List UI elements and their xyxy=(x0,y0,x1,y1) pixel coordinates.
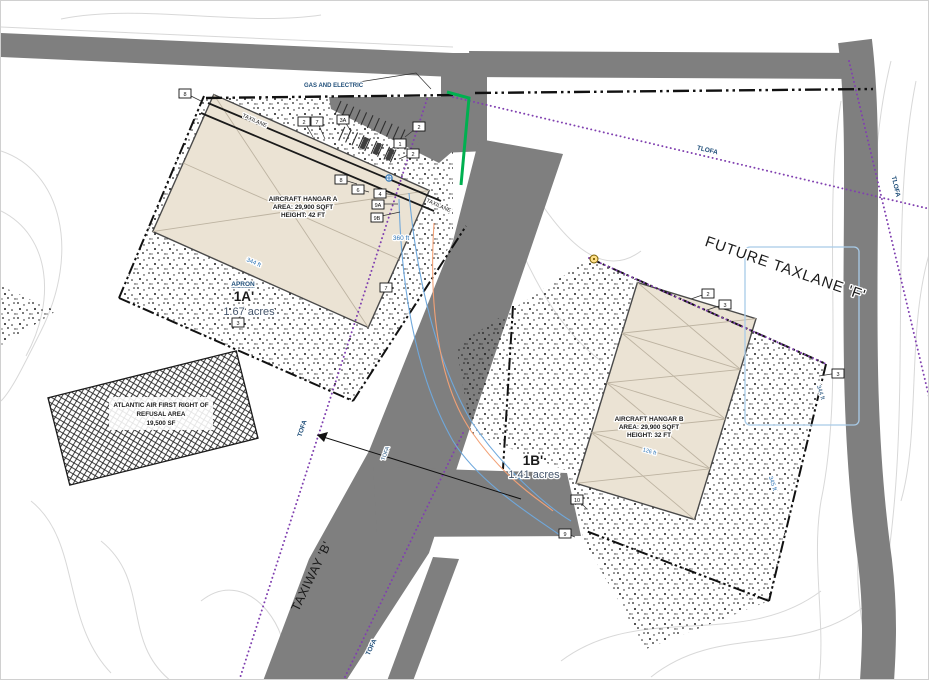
svg-text:4: 4 xyxy=(378,192,381,198)
hangar-b-height: HEIGHT: 32 FT xyxy=(627,432,671,439)
parcel-1b-id: 1B' xyxy=(523,453,543,468)
svg-text:9: 9 xyxy=(563,532,566,538)
svg-text:10: 10 xyxy=(574,498,580,504)
survey-marker-blue xyxy=(386,175,392,181)
hangar-a-height: HEIGHT: 42 FT xyxy=(281,212,325,219)
svg-text:7: 7 xyxy=(315,120,318,126)
gas-electric-label: GAS AND ELECTRIC xyxy=(304,83,364,89)
hangar-b-area: AREA: 29,900 SQFT xyxy=(619,424,679,431)
svg-text:3A: 3A xyxy=(340,118,347,124)
hangar-b-name: AIRCRAFT HANGAR B xyxy=(615,416,684,423)
svg-text:9A: 9A xyxy=(375,203,382,209)
svg-text:8: 8 xyxy=(339,178,342,184)
svg-text:9B: 9B xyxy=(374,216,381,222)
road-top-right xyxy=(469,51,865,79)
atlantic-line2: REFUSAL AREA xyxy=(137,411,186,418)
atlantic-line1: ATLANTIC AIR FIRST RIGHT OF xyxy=(113,402,208,409)
hangar-a-area: AREA: 29,900 SQFT xyxy=(273,204,333,211)
svg-text:8: 8 xyxy=(183,92,186,98)
svg-text:2: 2 xyxy=(302,120,305,126)
svg-text:3: 3 xyxy=(836,372,839,378)
svg-text:1: 1 xyxy=(398,142,401,148)
site-plan: 8273A2128649A9B73233109 GAS AND ELECTRIC… xyxy=(0,0,929,680)
site-plan-canvas: 8273A2128649A9B73233109 GAS AND ELECTRIC… xyxy=(1,1,929,680)
node-marker-dot xyxy=(593,258,595,260)
atlantic-line3: 19,500 SF xyxy=(146,420,175,427)
svg-text:2: 2 xyxy=(706,292,709,298)
parcel-1a-id: 1A' xyxy=(234,289,254,304)
svg-text:6: 6 xyxy=(356,188,359,194)
hangar-a-name: AIRCRAFT HANGAR A xyxy=(269,196,338,203)
svg-text:7: 7 xyxy=(384,286,387,292)
parcel-1b-acres: 1.41 acres xyxy=(508,469,560,481)
parcel-1a-acres: 1.67 acres xyxy=(223,306,275,318)
svg-text:2: 2 xyxy=(417,125,420,131)
svg-text:2: 2 xyxy=(411,152,414,158)
dim-360ft: 360 ft xyxy=(393,235,409,242)
svg-text:3: 3 xyxy=(723,303,726,309)
apron-label: APRON xyxy=(231,281,255,288)
svg-text:3: 3 xyxy=(236,321,239,327)
